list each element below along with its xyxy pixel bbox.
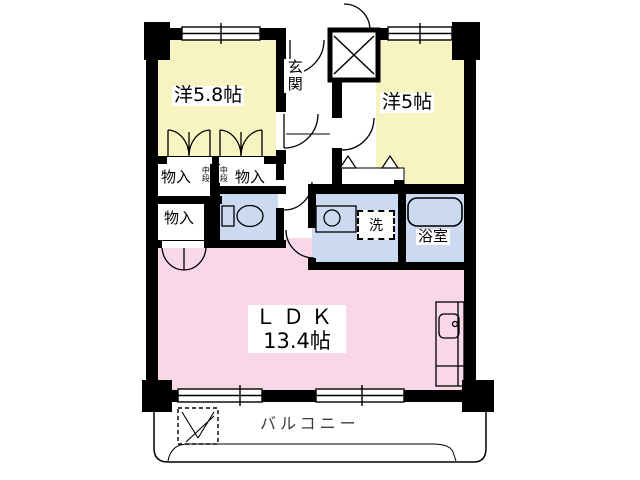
entrance-label: 玄関 [284,59,304,93]
toilet-door-arc [284,182,312,210]
shelf-right-label: 中段 [219,165,227,183]
bathroom-label: 浴室 [416,229,450,245]
bedroom1-door-arc [284,114,318,148]
laundry-label: 洗 [369,215,383,235]
bedroom2-label: 洋5帖 [380,93,434,113]
pipe-space-icon [330,30,378,80]
bedroom2-door-arc [342,118,374,150]
ldk-size: 13.4帖 [248,329,346,353]
toilet-area [216,194,278,242]
shelf-left-label: 中段 [201,165,209,183]
storage-top-left-label: 物入 [159,170,193,186]
bathroom-area [404,184,466,264]
ldk-label: ＬＤＫ 13.4帖 [248,305,346,353]
ldk-name: ＬＤＫ [248,305,346,329]
balcony-label: バルコニー [260,410,360,434]
floorplan-drawing [0,0,640,480]
folding-door-icons [340,156,398,168]
evacuation-hatch-icon [178,408,218,444]
bedroom1-label: 洋5.8帖 [172,86,244,106]
laundry-pan-icon: 洗 [357,210,395,240]
storage-top-right-label: 物入 [233,170,267,186]
floorplan-canvas: 洋5.8帖 洋5帖 玄関 物入 中段 中段 物入 物入 洗 浴室 ＬＤＫ 13.… [0,0,640,480]
storage-lower-label: 物入 [162,211,196,227]
